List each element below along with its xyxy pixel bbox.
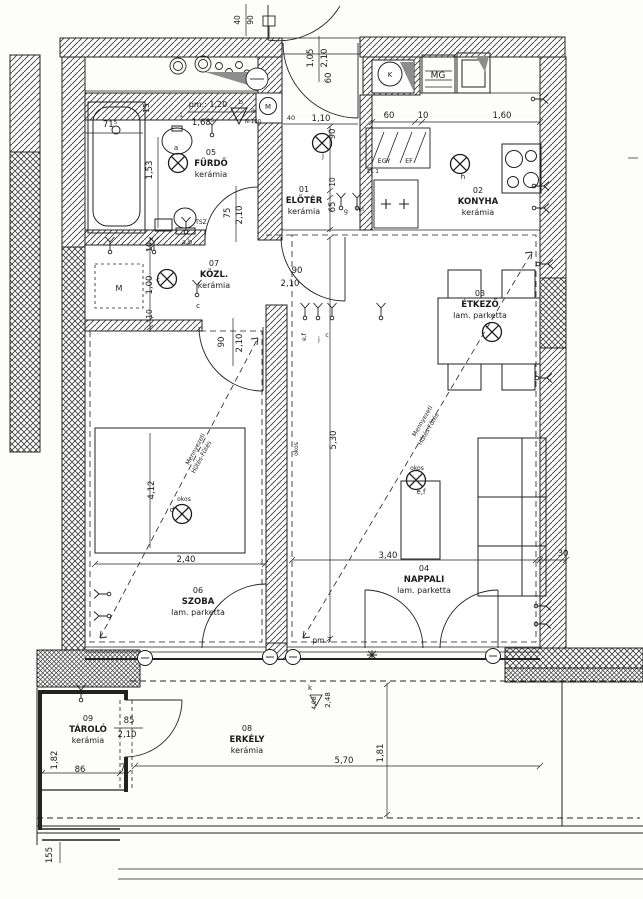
dimension-label: 5,30 [329,431,339,450]
dimension-label: 90 [246,15,255,25]
dimension-label: M [116,284,123,293]
room-floor-finish: lam. parketta [171,608,225,617]
room-name: KONYHA [458,197,499,207]
room-floor-finish: kerámia [198,281,230,290]
dimension-label: 30 [558,549,569,559]
snowflake-marker [367,650,377,660]
room-name: ÉTKEZŐ [461,298,498,310]
room-number: 07 [209,259,219,268]
dimension-label: d [170,506,174,514]
dimension-label: M [265,103,271,111]
dimension-label: okos [177,496,191,503]
dimension-label: 2,10 [320,49,330,68]
room-name: FÜRDŐ [194,158,228,169]
dimension-label: j [317,336,320,343]
room-floor-finish: lam. parketta [397,586,451,595]
neighbor-wall-lower [10,152,40,452]
dimension-label: EGY [378,157,391,165]
room-number: 08 [242,724,252,733]
room-floor-finish: kerámia [462,208,494,217]
dimension-label: 2,10 [235,334,245,353]
dimension-label: 1,10 [312,114,331,124]
dimension-label: a [251,106,255,114]
dimension-label: 1,68⁵ [192,118,214,128]
room-number: 09 [83,714,93,723]
dimension-label: 65 [328,202,338,213]
room-number: 06 [193,586,203,595]
dimension-label: a,b [182,238,192,246]
room-floor-finish: kerámia [231,746,263,755]
room-floor-finish: kerámia [195,170,227,179]
right-wall [540,57,566,648]
room-name: ELŐTÉR [286,194,323,206]
dimension-label: 90 [328,129,338,140]
room-floor-finish: lam. parketta [453,311,507,320]
dimension-label: 3,40 [379,551,398,561]
top-wall-left [60,38,282,57]
dimension-label: 40 [233,15,242,25]
dimension-label: 4,08 [311,696,318,710]
bottom-left-band [37,650,140,687]
left-wall-lower [62,247,85,653]
dimension-label: 10 [328,177,337,187]
dimension-label: c [196,302,200,310]
room-name: KÖZL. [200,269,228,280]
dimension-label: e,f [417,488,427,496]
dimension-label: 2,10 [281,279,300,289]
room-number: 03 [475,289,485,298]
dimension-label: pm.: 1,20 [189,100,227,109]
dimension-label: pm 7 [312,636,331,645]
dimension-label: 15 [142,103,151,113]
room-floor-finish: kerámia [288,207,320,216]
dimension-label: 10 [145,242,154,252]
dimension-label: 90 [217,337,227,348]
room-name: SZOBA [182,597,215,607]
dimension-label: K [388,71,393,79]
dimension-label: N-100 [245,119,262,125]
dimension-label: 60 [324,73,334,84]
dimension-label: EL 1 [367,169,379,175]
right-wall-insulation [540,278,566,348]
dimension-label: 85 [124,716,135,726]
room-number: 04 [419,564,429,573]
dimension-label: 2,10 [235,206,245,225]
dimension-label: 2,40 [177,555,196,565]
dimension-label: 1 [179,112,183,119]
dimension-label: 75 [223,208,233,219]
dimension-label: c [325,332,328,339]
dimension-label: 1,53 [145,161,155,180]
dimension-label: MG [431,71,446,81]
dimension-label: 1,60 [493,111,512,121]
dimension-label: 10 [418,111,429,121]
dimension-label: a [174,144,178,152]
center-partition-wall [266,305,287,648]
dimension-label: 155 [45,847,55,863]
dimension-label: 2,10 [118,730,137,740]
corridor-bottom-wall [85,320,202,331]
dimension-label: 1,81 [376,744,386,763]
dimension-label: 4,12 [147,481,157,500]
dimension-label: 1,82 [50,751,60,770]
dimension-label: 60 [384,111,395,121]
dimension-label: 5,70 [335,756,354,766]
room-name: TÁROLÓ [69,723,107,735]
dimension-label: 1,05 [306,49,316,68]
dimension-label: j [321,152,324,160]
room-name: ERKÉLY [230,733,266,745]
dimension-label: 2,48 [324,692,332,708]
dimension-label: e,f [301,332,308,341]
bottom-right-band2 [505,668,643,682]
dimension-label: h [461,173,465,181]
dimension-label: 86 [75,765,86,775]
dimension-label: 10 [145,309,154,319]
dimension-label: 1,00 [145,276,155,295]
dimension-label: EF [405,157,413,165]
dimension-label: c [156,276,160,284]
room-name: NAPPALI [404,575,445,585]
dimension-label: okos [410,465,424,472]
dimension-label: 7 [120,763,125,773]
floor-plan-sheet: 05FÜRDŐkerámia01ELŐTÉRkerámia02KONYHAker… [0,0,643,899]
room-number: 02 [473,186,483,195]
room-floor-finish: kerámia [72,736,104,745]
apartment-floor-plan: 05FÜRDŐkerámia01ELŐTÉRkerámia02KONYHAker… [0,0,643,899]
dimension-label: okos [293,442,300,456]
dimension-label: b [239,98,243,106]
dimension-label: h,i [356,205,364,213]
dimension-label: 90 [292,266,303,276]
dimension-label: g [344,207,348,215]
neighbor-wall-upper [10,55,40,152]
dimension-label: TSZ [194,219,207,226]
dimension-label: 40 [287,114,295,122]
room-number: 05 [206,148,216,157]
dimension-label: 71⁵ [103,120,117,130]
top-wall-right [360,37,565,57]
room-number: 01 [299,185,309,194]
left-wall-upper [62,57,85,247]
